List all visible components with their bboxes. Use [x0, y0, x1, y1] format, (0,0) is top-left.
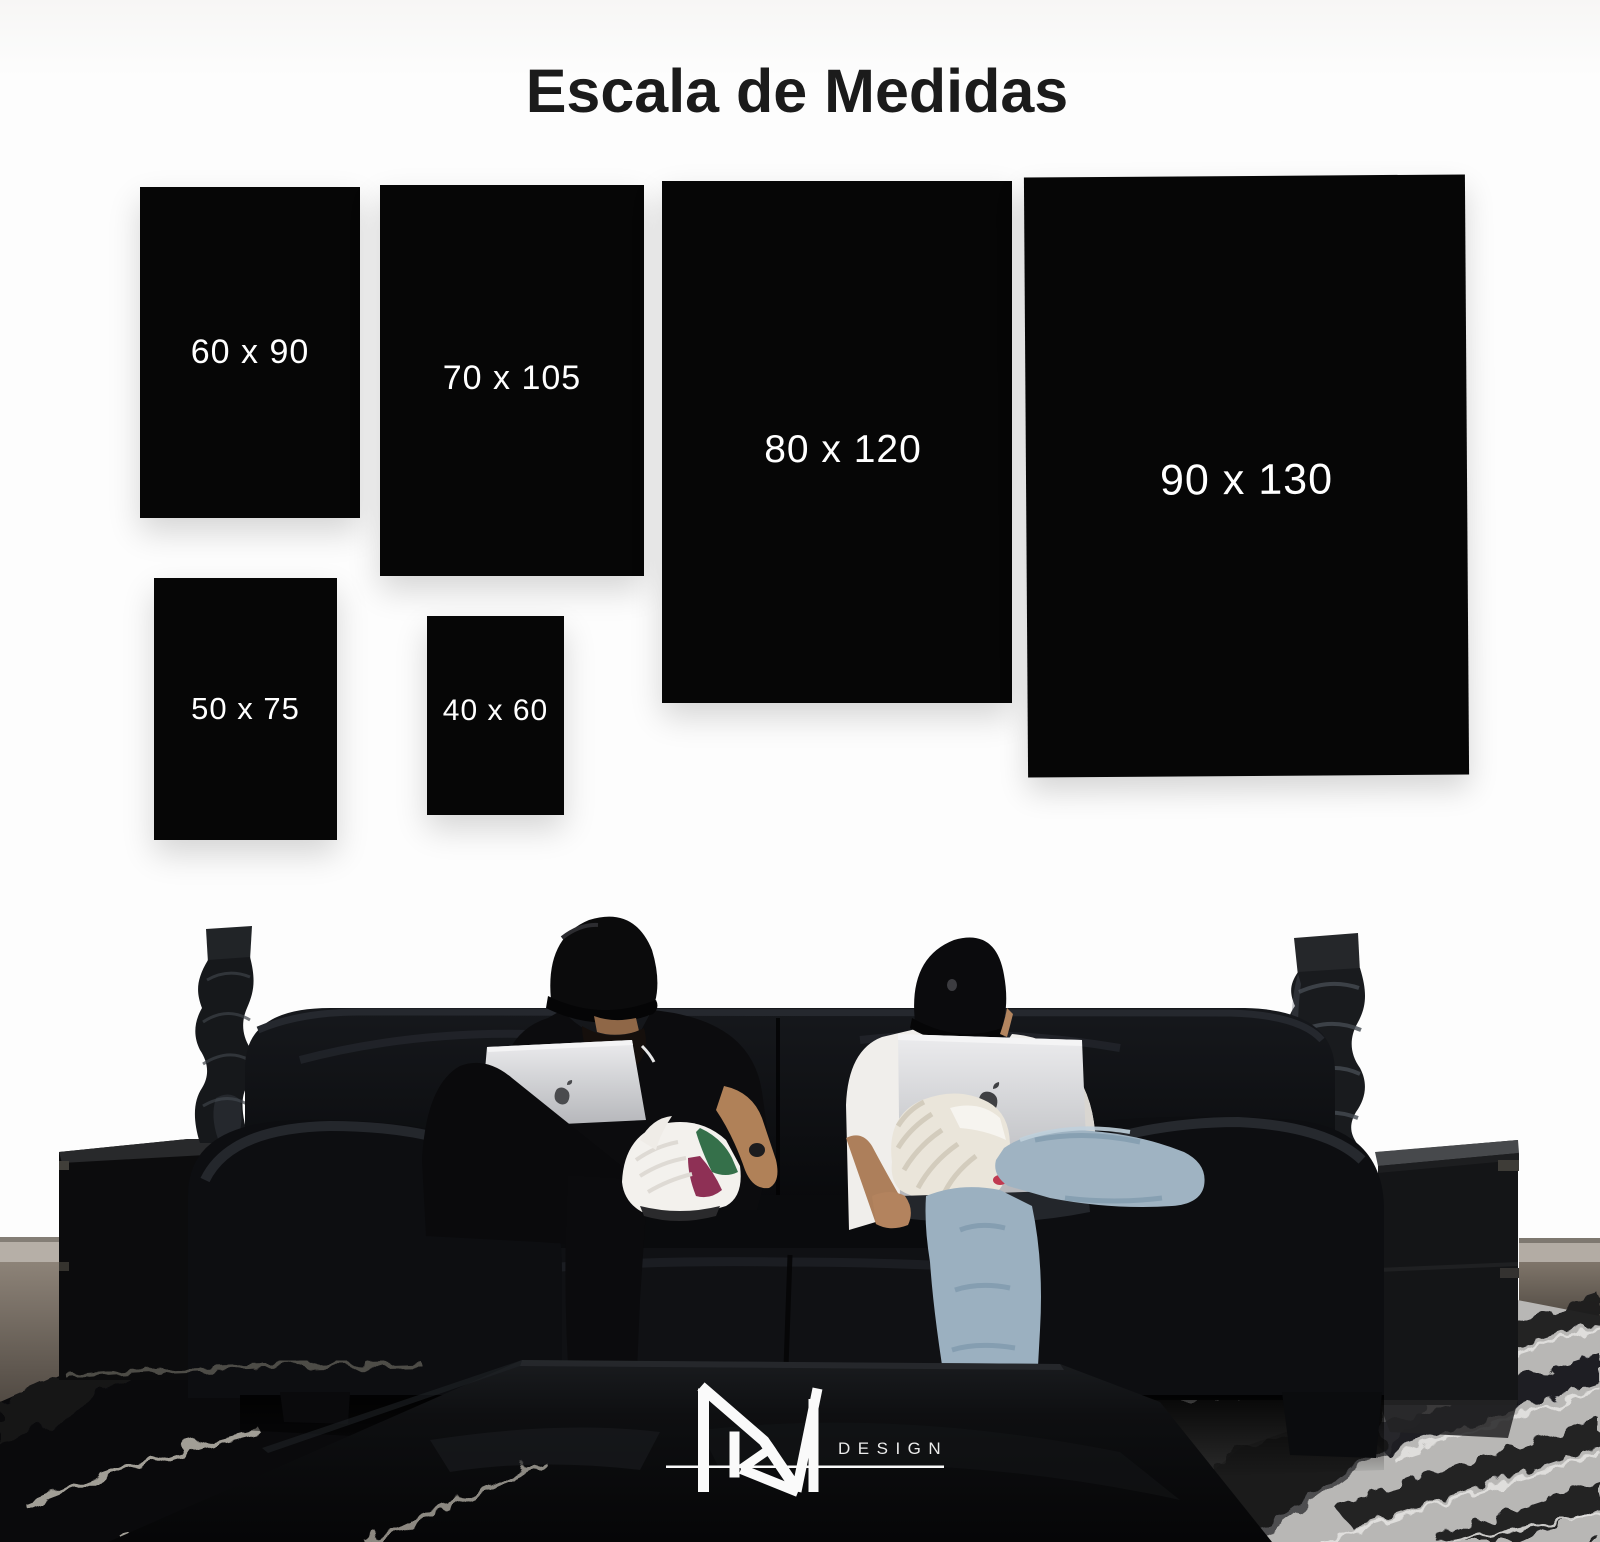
svg-text:DESIGN: DESIGN [838, 1439, 948, 1458]
